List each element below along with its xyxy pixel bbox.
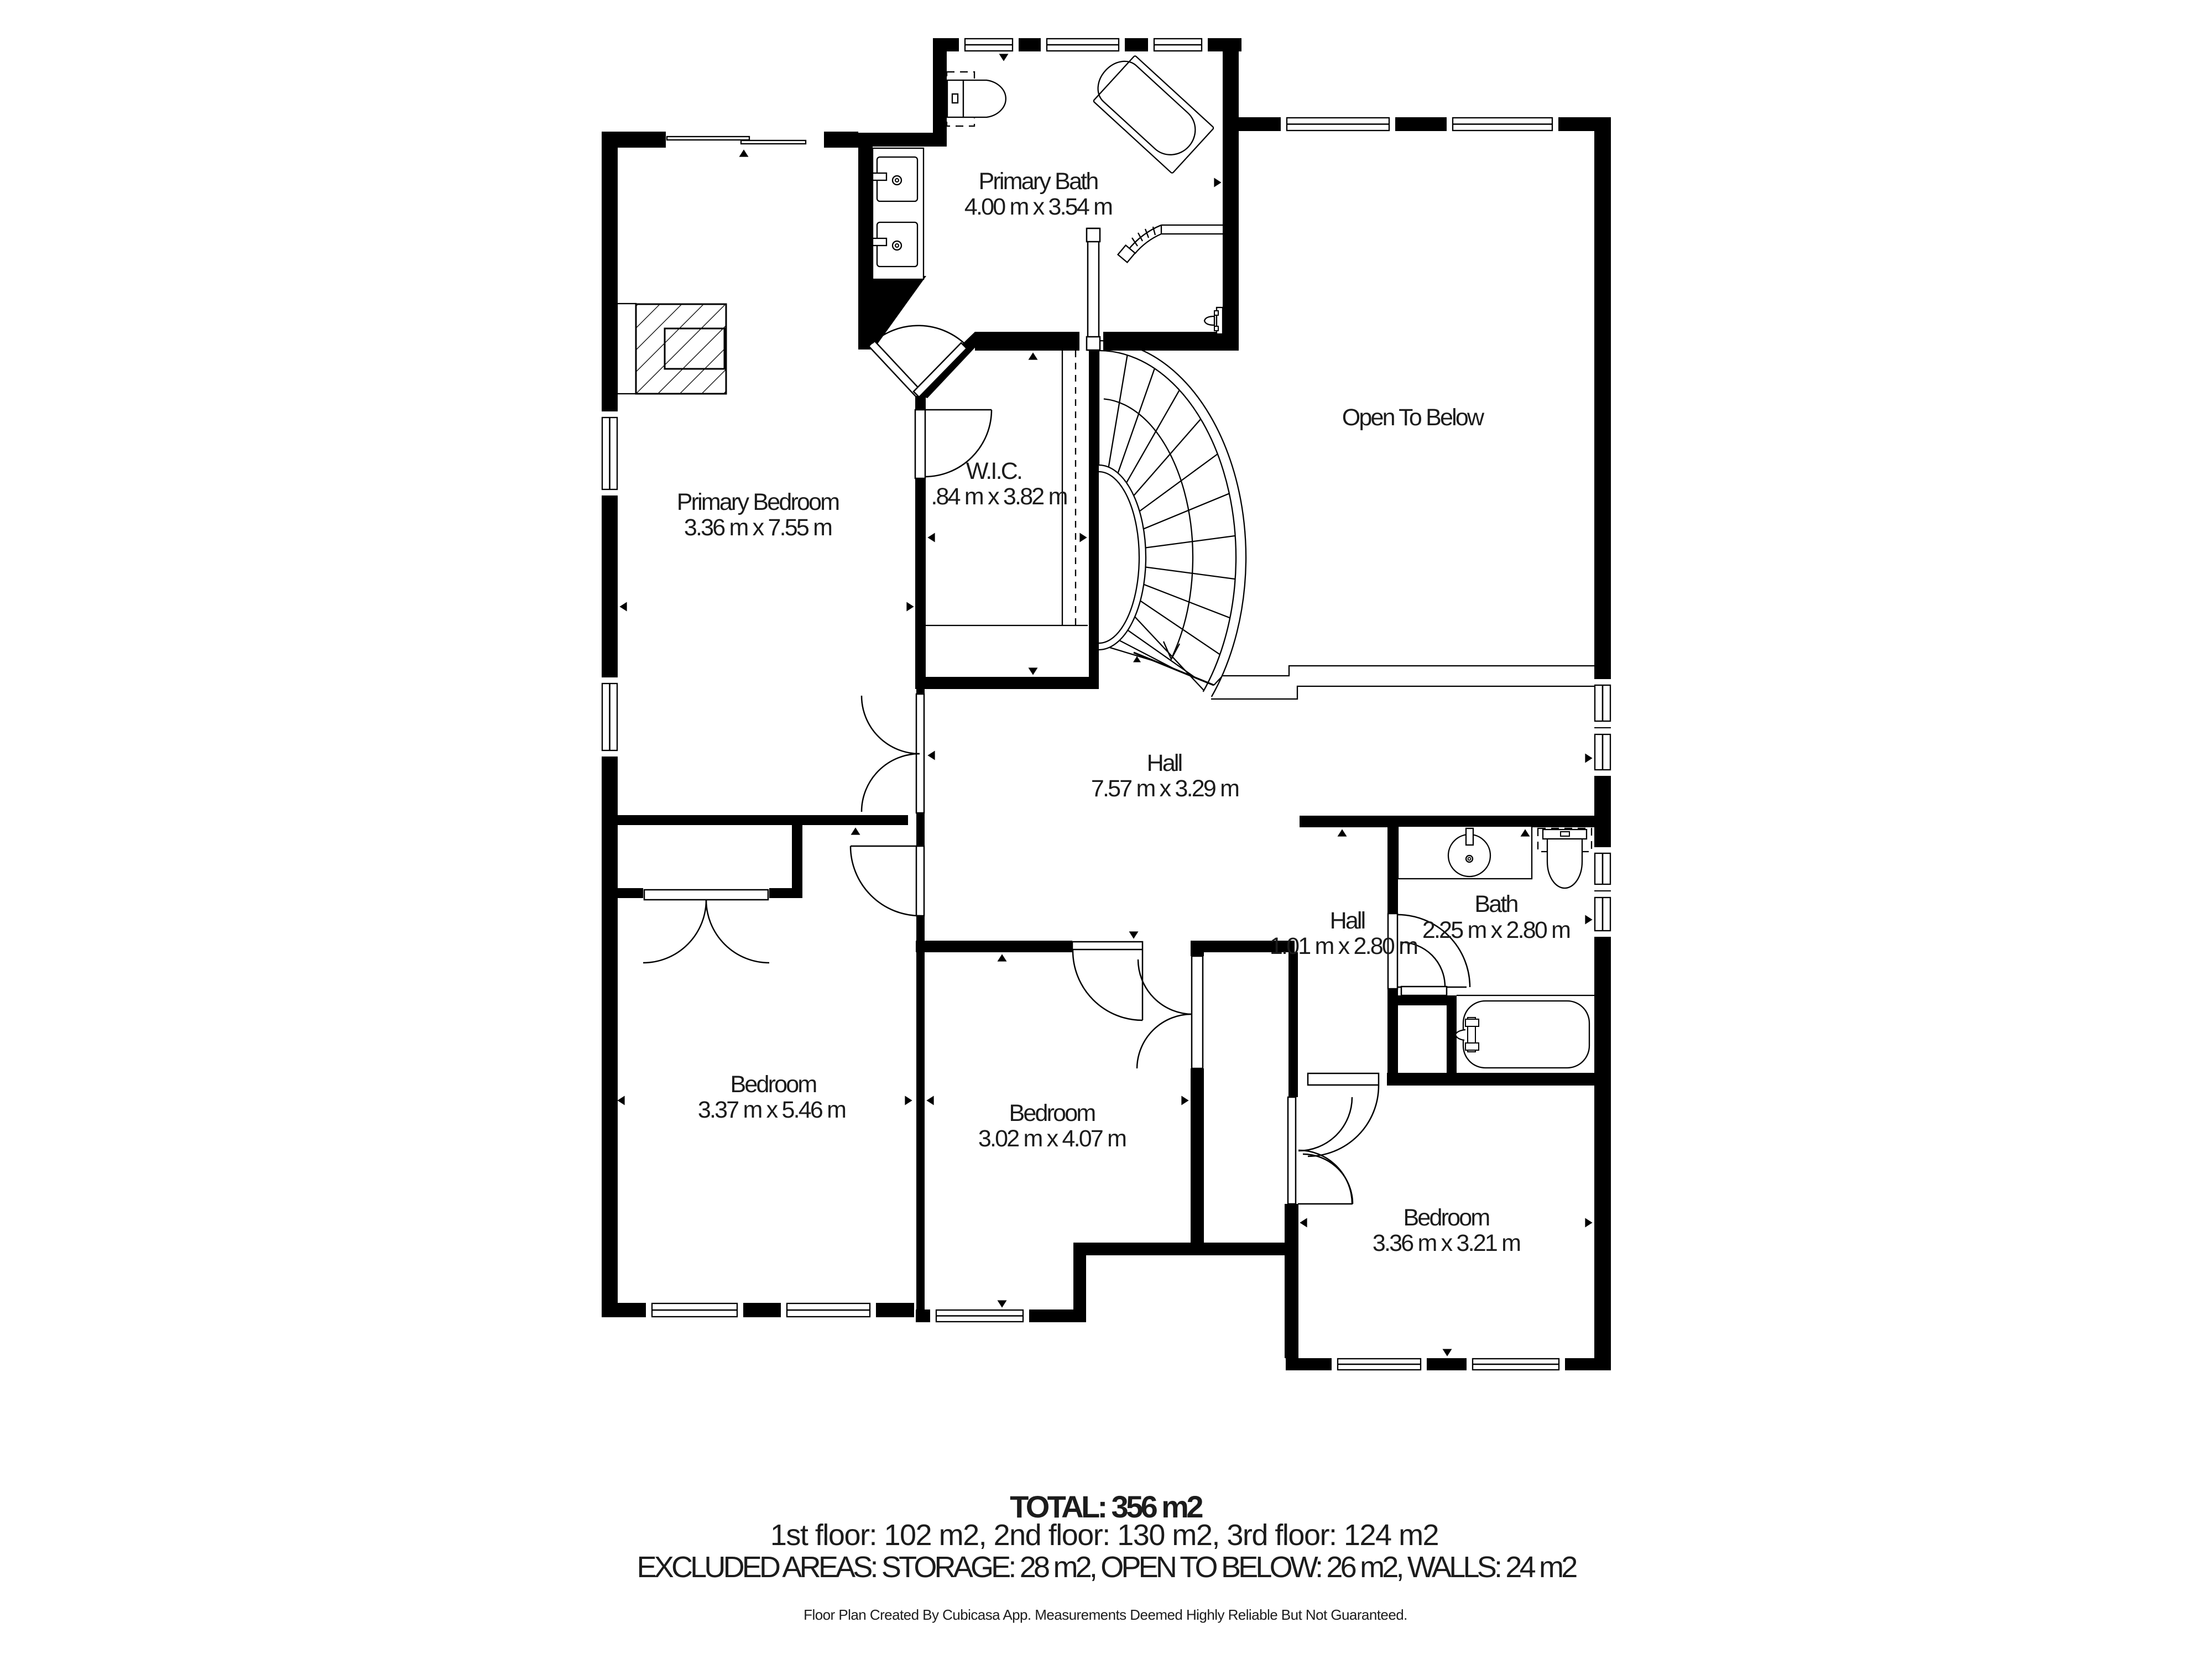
svg-text:2.25 m x 2.80 m: 2.25 m x 2.80 m — [1422, 917, 1569, 943]
svg-text:7.57 m x 3.29 m: 7.57 m x 3.29 m — [1091, 775, 1238, 802]
svg-text:EXCLUDED AREAS: STORAGE: 28 m2: EXCLUDED AREAS: STORAGE: 28 m2, OPEN TO … — [637, 1551, 1577, 1584]
svg-text:Hall: Hall — [1147, 750, 1182, 776]
svg-text:Primary Bath: Primary Bath — [979, 168, 1098, 195]
svg-text:Bedroom: Bedroom — [1009, 1100, 1095, 1126]
svg-text:3.02 m x 4.07 m: 3.02 m x 4.07 m — [978, 1125, 1125, 1152]
svg-text:3.37 m x 5.46 m: 3.37 m x 5.46 m — [698, 1097, 845, 1123]
svg-text:Hall: Hall — [1330, 907, 1365, 934]
svg-text:.84 m x 3.82 m: .84 m x 3.82 m — [931, 483, 1066, 510]
svg-text:Primary Bedroom: Primary Bedroom — [677, 489, 839, 515]
svg-text:1st floor: 102 m2, 2nd floor:: 1st floor: 102 m2, 2nd floor: 130 m2, 3r… — [770, 1519, 1438, 1552]
svg-text:Bath: Bath — [1474, 891, 1517, 917]
svg-text:Open To Below: Open To Below — [1342, 404, 1485, 431]
svg-text:3.36 m x 7.55 m: 3.36 m x 7.55 m — [684, 514, 831, 541]
svg-text:Bedroom: Bedroom — [1404, 1204, 1489, 1231]
svg-text:Bedroom: Bedroom — [731, 1071, 816, 1098]
svg-text:Floor Plan Created By Cubicasa: Floor Plan Created By Cubicasa App. Meas… — [804, 1606, 1407, 1623]
svg-text:4.00 m x 3.54 m: 4.00 m x 3.54 m — [964, 194, 1112, 220]
svg-text:1.01 m x 2.80 m: 1.01 m x 2.80 m — [1270, 933, 1417, 959]
svg-text:3.36 m x 3.21 m: 3.36 m x 3.21 m — [1373, 1230, 1520, 1256]
svg-text:W.I.C.: W.I.C. — [966, 458, 1021, 484]
